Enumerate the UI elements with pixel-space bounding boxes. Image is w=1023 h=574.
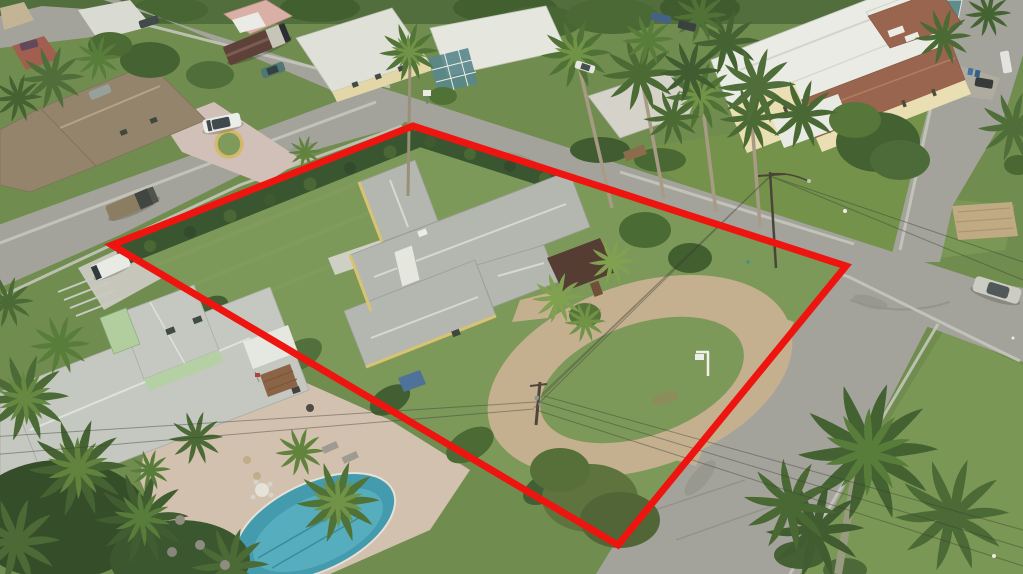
aerial-photo	[0, 0, 1023, 574]
photo-haze	[0, 0, 1023, 574]
